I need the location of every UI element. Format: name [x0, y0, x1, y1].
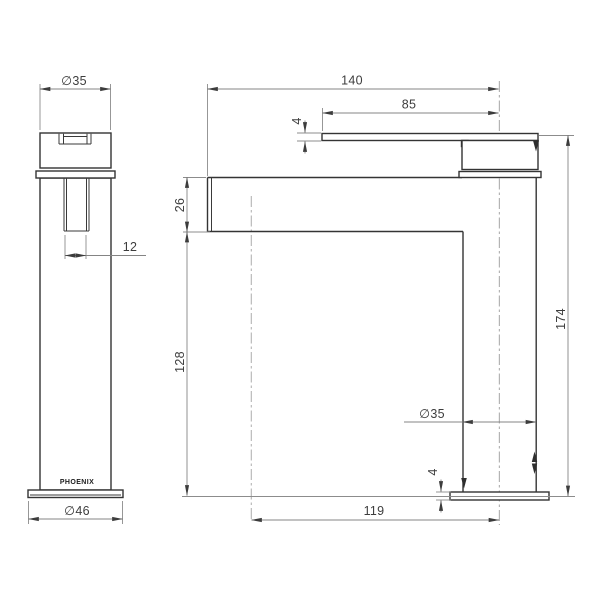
dimension-label: 140 [341, 74, 363, 88]
dimension-label: 128 [173, 351, 187, 373]
spout [208, 178, 464, 232]
side-view: ∅35 12 [28, 74, 146, 524]
spout-depth-dim: 26 [173, 178, 210, 233]
trim-ring [36, 171, 115, 178]
spout-reach-dim: 140 [208, 74, 499, 177]
dimension-label: 4 [426, 468, 440, 475]
front-view: 140 85 4 26 128 [173, 74, 575, 526]
handle-cap [40, 133, 111, 168]
brand-logo-text: PHOENIX [60, 479, 94, 486]
dimension-label: 12 [123, 240, 138, 254]
tap-dimension-drawing: ∅35 12 [0, 0, 600, 600]
cartridge-cap [462, 141, 538, 170]
dimension-label: 119 [364, 504, 385, 518]
base-plate-side [28, 490, 123, 498]
dimension-label: ∅46 [64, 504, 90, 518]
dimension-label: 4 [290, 117, 304, 124]
dimension-label: ∅35 [419, 407, 445, 421]
lever-handle [322, 134, 538, 141]
lever-length-dim: 85 [323, 98, 499, 132]
overall-height-dim: 174 [539, 136, 574, 497]
base-plate-front [450, 492, 549, 500]
body-diameter-dim: ∅35 [404, 407, 536, 422]
dimension-label: ∅35 [61, 74, 87, 88]
dimension-label: 85 [402, 98, 417, 112]
technical-drawing-page: ∅35 12 [0, 0, 600, 600]
outlet-offset-dim: 119 [252, 504, 500, 520]
handle-diameter-dim: ∅35 [40, 74, 111, 130]
dimension-label: 26 [173, 198, 187, 213]
base-thickness-dim: 4 [426, 468, 451, 512]
trim-ring-front [459, 172, 541, 178]
dimension-label: 174 [554, 308, 568, 330]
tap-body-side [40, 178, 111, 490]
base-diameter-dim: ∅46 [29, 501, 123, 524]
lever-thickness-dim: 4 [290, 117, 321, 153]
detail-arrow [461, 478, 467, 489]
under-spout-height-dim: 128 [173, 232, 187, 496]
